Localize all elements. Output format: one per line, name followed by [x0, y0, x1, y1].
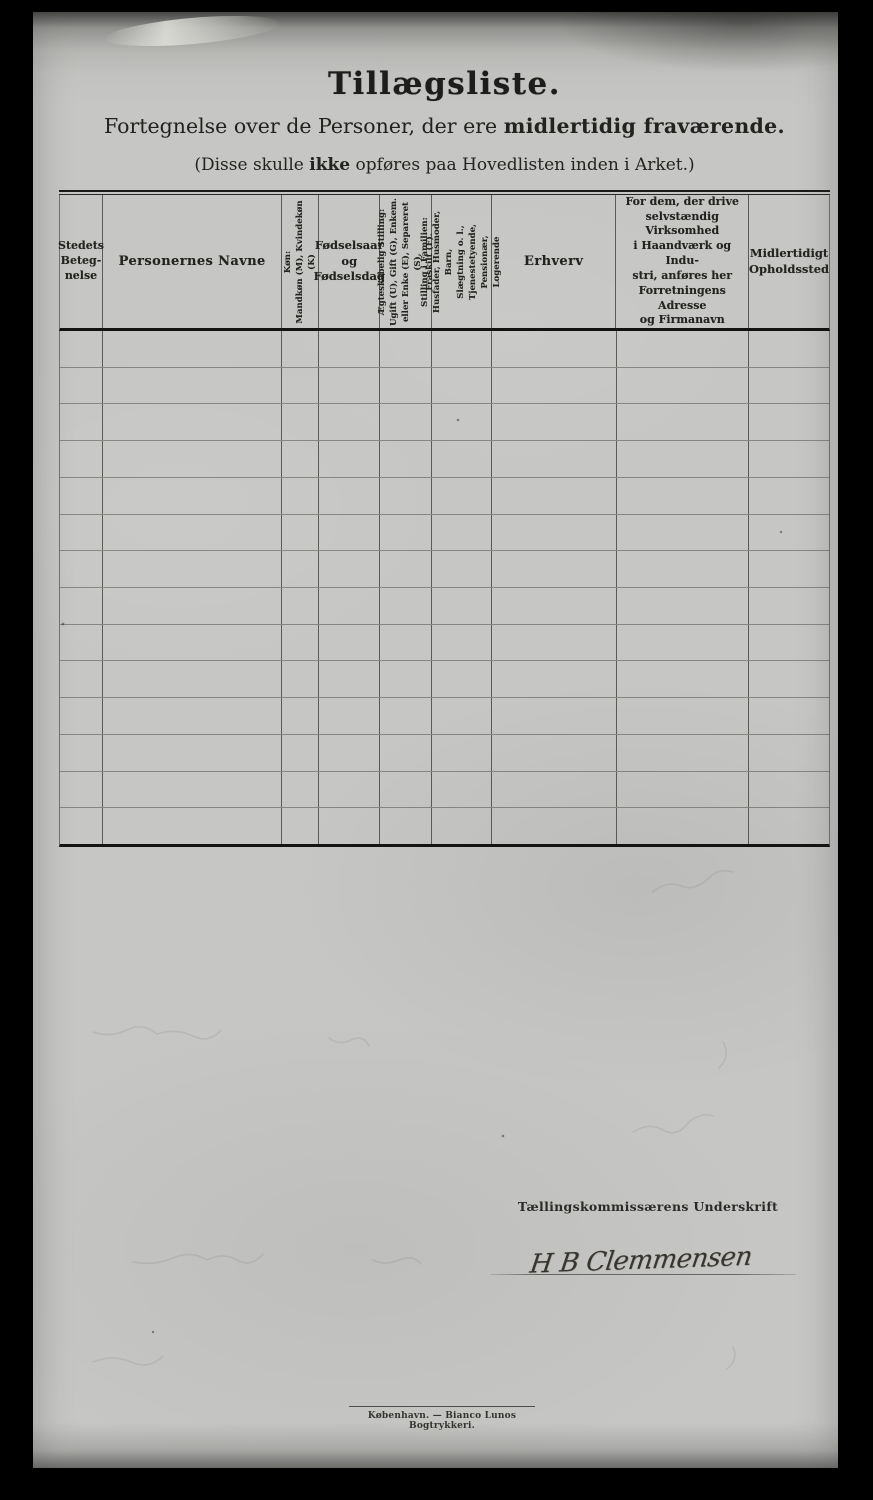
cell-midlertidigt-opholdssted	[749, 441, 829, 477]
cell-foedselsaar	[319, 772, 380, 808]
cell-virksomheds-adresse	[617, 698, 750, 734]
cell-koen	[282, 368, 319, 404]
cell-midlertidigt-opholdssted	[749, 772, 829, 808]
cell-erhverv	[492, 808, 617, 844]
cell-koen	[282, 551, 319, 587]
cell-personernes-navne	[103, 551, 283, 587]
cell-aegteskabelig-stilling	[380, 808, 432, 844]
cell-virksomheds-adresse	[617, 331, 750, 367]
cell-stedets-betegnelse	[60, 331, 103, 367]
paper-fold-mark	[104, 10, 281, 51]
column-header-foedselsaar: Fødselsaar og Fødselsdag	[319, 195, 380, 328]
printer-imprint: København. — Bianco Lunos Bogtrykkeri.	[349, 1406, 535, 1431]
cell-midlertidigt-opholdssted	[749, 735, 829, 771]
cell-virksomheds-adresse	[617, 588, 750, 624]
page-subtitle: Fortegnelse over de Personer, der ere mi…	[59, 114, 830, 138]
cell-virksomheds-adresse	[617, 404, 750, 440]
signature-label: Tællingskommissærens Underskrift	[483, 1199, 813, 1214]
cell-personernes-navne	[103, 808, 283, 844]
scanned-census-page: { "header": { "title": "Tillægsliste.", …	[0, 0, 873, 1500]
cell-aegteskabelig-stilling	[380, 588, 432, 624]
cell-erhverv	[492, 588, 617, 624]
cell-stilling-i-familien	[432, 735, 492, 771]
table-row	[60, 734, 829, 771]
column-header-stedets-betegnelse: Stedets Beteg- nelse	[60, 195, 103, 328]
cell-virksomheds-adresse	[617, 808, 750, 844]
cell-personernes-navne	[103, 478, 283, 514]
table-body	[59, 331, 830, 847]
column-header-virksomheds-adresse: For dem, der drive selvstændig Virksomhe…	[616, 195, 749, 328]
table-header-row: Stedets Beteg- nelse Personernes Navne K…	[59, 195, 830, 331]
cell-foedselsaar	[319, 515, 380, 551]
cell-koen	[282, 441, 319, 477]
cell-aegteskabelig-stilling	[380, 661, 432, 697]
page-note: (Disse skulle ikke opføres paa Hovedlist…	[59, 155, 830, 175]
cell-koen	[282, 661, 319, 697]
cell-erhverv	[492, 698, 617, 734]
cell-stedets-betegnelse	[60, 441, 103, 477]
cell-personernes-navne	[103, 441, 283, 477]
table-row	[60, 771, 829, 808]
table-row	[60, 440, 829, 477]
cell-virksomheds-adresse	[617, 661, 750, 697]
cell-stilling-i-familien	[432, 404, 492, 440]
cell-stedets-betegnelse	[60, 515, 103, 551]
cell-koen	[282, 808, 319, 844]
cell-stilling-i-familien	[432, 698, 492, 734]
cell-foedselsaar	[319, 808, 380, 844]
column-header-erhverv: Erhverv	[492, 195, 617, 328]
cell-stilling-i-familien	[432, 772, 492, 808]
cell-foedselsaar	[319, 368, 380, 404]
cell-erhverv	[492, 625, 617, 661]
table-top-rule-thick	[59, 190, 830, 192]
cell-stilling-i-familien	[432, 661, 492, 697]
cell-stilling-i-familien	[432, 551, 492, 587]
cell-aegteskabelig-stilling	[380, 551, 432, 587]
note-prefix-text: (Disse skulle	[194, 155, 309, 175]
cell-stedets-betegnelse	[60, 661, 103, 697]
cell-aegteskabelig-stilling	[380, 735, 432, 771]
cell-stilling-i-familien	[432, 588, 492, 624]
table-row	[60, 587, 829, 624]
cell-personernes-navne	[103, 735, 283, 771]
cell-stedets-betegnelse	[60, 625, 103, 661]
paper-sheet: Tillægsliste. Fortegnelse over de Person…	[33, 12, 838, 1468]
cell-koen	[282, 515, 319, 551]
cell-stedets-betegnelse	[60, 808, 103, 844]
cell-stedets-betegnelse	[60, 404, 103, 440]
cell-aegteskabelig-stilling	[380, 698, 432, 734]
cell-erhverv	[492, 515, 617, 551]
table-row	[60, 697, 829, 734]
cell-aegteskabelig-stilling	[380, 368, 432, 404]
cell-aegteskabelig-stilling	[380, 772, 432, 808]
cell-personernes-navne	[103, 698, 283, 734]
cell-midlertidigt-opholdssted	[749, 478, 829, 514]
column-header-personernes-navne: Personernes Navne	[103, 195, 282, 328]
cell-koen	[282, 698, 319, 734]
cell-stilling-i-familien	[432, 368, 492, 404]
cell-midlertidigt-opholdssted	[749, 661, 829, 697]
cell-foedselsaar	[319, 404, 380, 440]
cell-virksomheds-adresse	[617, 441, 750, 477]
cell-erhverv	[492, 441, 617, 477]
cell-foedselsaar	[319, 588, 380, 624]
cell-personernes-navne	[103, 588, 283, 624]
cell-aegteskabelig-stilling	[380, 404, 432, 440]
cell-koen	[282, 331, 319, 367]
cell-virksomheds-adresse	[617, 478, 750, 514]
cell-midlertidigt-opholdssted	[749, 698, 829, 734]
cell-erhverv	[492, 551, 617, 587]
cell-midlertidigt-opholdssted	[749, 404, 829, 440]
column-header-midlertidigt-opholdssted: Midlertidigt Opholdssted	[749, 195, 829, 328]
cell-midlertidigt-opholdssted	[749, 588, 829, 624]
cell-midlertidigt-opholdssted	[749, 808, 829, 844]
census-form-table: Stedets Beteg- nelse Personernes Navne K…	[59, 190, 830, 847]
cell-personernes-navne	[103, 625, 283, 661]
cell-aegteskabelig-stilling	[380, 478, 432, 514]
cell-personernes-navne	[103, 772, 283, 808]
cell-stilling-i-familien	[432, 441, 492, 477]
table-row	[60, 367, 829, 404]
cell-koen	[282, 625, 319, 661]
cell-personernes-navne	[103, 515, 283, 551]
cell-erhverv	[492, 661, 617, 697]
table-row	[60, 331, 829, 367]
cell-stilling-i-familien	[432, 478, 492, 514]
cell-foedselsaar	[319, 735, 380, 771]
subtitle-bold-text: midlertidig fraværende.	[504, 114, 785, 138]
cell-foedselsaar	[319, 625, 380, 661]
note-suffix-text: opføres paa Hovedlisten inden i Arket.)	[350, 155, 695, 175]
cell-midlertidigt-opholdssted	[749, 331, 829, 367]
cell-foedselsaar	[319, 478, 380, 514]
cell-midlertidigt-opholdssted	[749, 625, 829, 661]
cell-foedselsaar	[319, 661, 380, 697]
cell-stilling-i-familien	[432, 625, 492, 661]
cell-stedets-betegnelse	[60, 698, 103, 734]
cell-stedets-betegnelse	[60, 478, 103, 514]
page-title: Tillægsliste.	[59, 66, 830, 102]
cell-aegteskabelig-stilling	[380, 441, 432, 477]
cell-aegteskabelig-stilling	[380, 515, 432, 551]
cell-virksomheds-adresse	[617, 772, 750, 808]
cell-personernes-navne	[103, 404, 283, 440]
cell-stilling-i-familien	[432, 331, 492, 367]
cell-foedselsaar	[319, 551, 380, 587]
cell-foedselsaar	[319, 331, 380, 367]
cell-erhverv	[492, 404, 617, 440]
cell-stedets-betegnelse	[60, 735, 103, 771]
subtitle-regular-text: Fortegnelse over de Personer, der ere	[104, 114, 504, 138]
cell-koen	[282, 588, 319, 624]
cell-personernes-navne	[103, 368, 283, 404]
cell-virksomheds-adresse	[617, 368, 750, 404]
cell-virksomheds-adresse	[617, 735, 750, 771]
table-row	[60, 660, 829, 697]
cell-aegteskabelig-stilling	[380, 331, 432, 367]
table-row	[60, 477, 829, 514]
cell-stedets-betegnelse	[60, 551, 103, 587]
column-header-stilling-i-familien: Stilling i Familien: Husfader, Husmoder,…	[432, 195, 492, 328]
cell-personernes-navne	[103, 661, 283, 697]
cell-personernes-navne	[103, 331, 283, 367]
cell-erhverv	[492, 478, 617, 514]
cell-erhverv	[492, 772, 617, 808]
note-bold-text: ikke	[309, 155, 350, 175]
cell-koen	[282, 404, 319, 440]
cell-foedselsaar	[319, 441, 380, 477]
table-row	[60, 514, 829, 551]
table-row	[60, 403, 829, 440]
cell-stedets-betegnelse	[60, 588, 103, 624]
cell-virksomheds-adresse	[617, 551, 750, 587]
cell-midlertidigt-opholdssted	[749, 368, 829, 404]
cell-midlertidigt-opholdssted	[749, 551, 829, 587]
cell-stedets-betegnelse	[60, 368, 103, 404]
table-row	[60, 624, 829, 661]
cell-koen	[282, 478, 319, 514]
cell-erhverv	[492, 735, 617, 771]
cell-koen	[282, 772, 319, 808]
cell-virksomheds-adresse	[617, 515, 750, 551]
cell-koen	[282, 735, 319, 771]
cell-aegteskabelig-stilling	[380, 625, 432, 661]
table-row	[60, 550, 829, 587]
cell-virksomheds-adresse	[617, 625, 750, 661]
table-row	[60, 807, 829, 844]
cell-stilling-i-familien	[432, 808, 492, 844]
cell-midlertidigt-opholdssted	[749, 515, 829, 551]
cell-erhverv	[492, 331, 617, 367]
cell-erhverv	[492, 368, 617, 404]
cell-stedets-betegnelse	[60, 772, 103, 808]
cell-stilling-i-familien	[432, 515, 492, 551]
cell-foedselsaar	[319, 698, 380, 734]
